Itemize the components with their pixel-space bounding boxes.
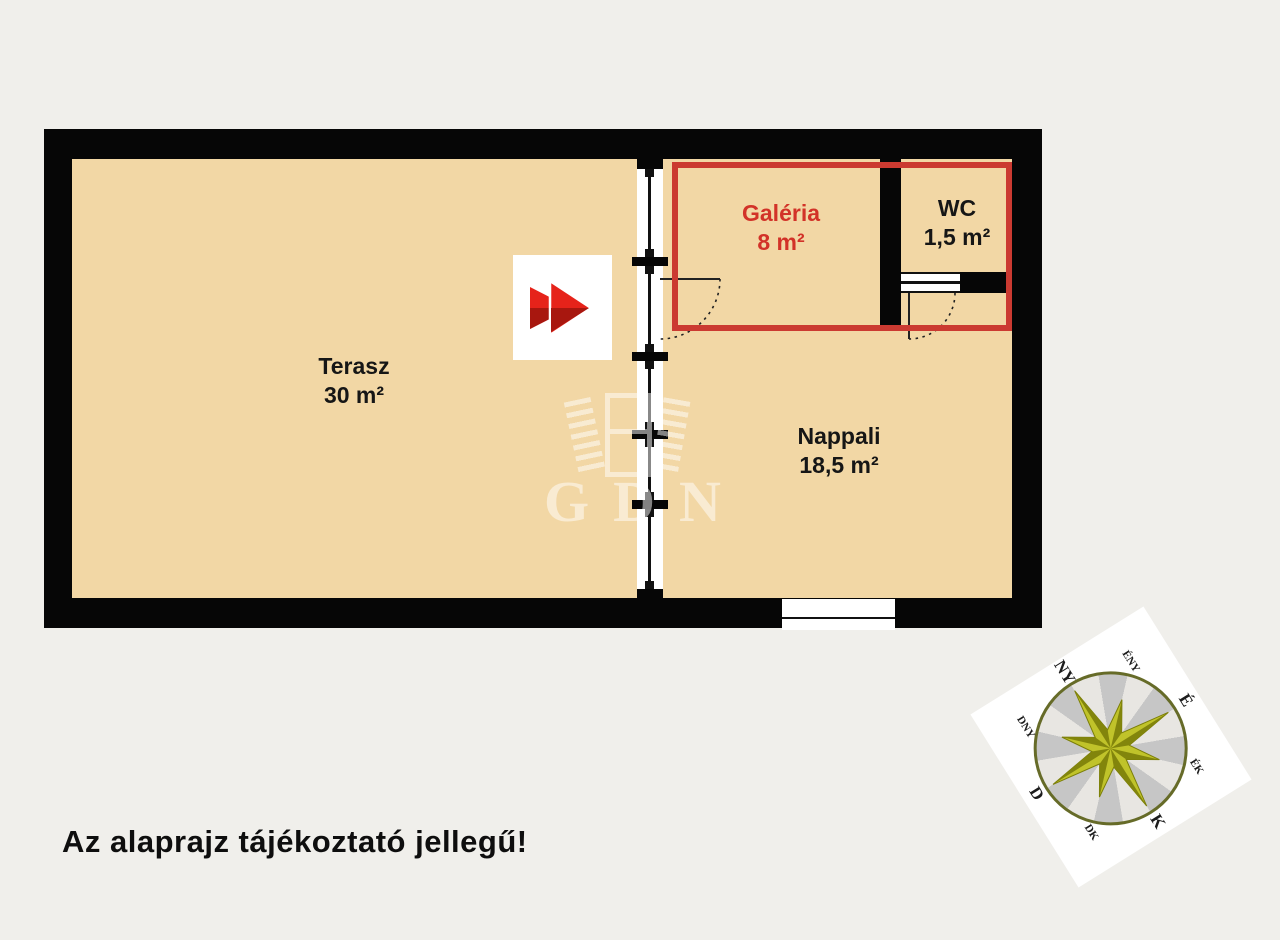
floorplan-page: GDN Terasz 30 m² Galéria 8 m² WC 1,5 m² … [0, 0, 1280, 940]
nappali-window-line [782, 617, 895, 619]
compass-rose: É ÉK K DK D DNY NY ÉNY [970, 606, 1251, 887]
room-label-galeria: Galéria 8 m² [742, 199, 820, 257]
compass-star-icon [1009, 646, 1213, 850]
red-arrow-icon [513, 255, 612, 360]
window-icon [637, 169, 663, 257]
room-area: 8 m² [742, 228, 820, 257]
nappali-window-icon [782, 599, 895, 630]
compass-circle [1005, 642, 1217, 854]
gdn-logo-center-building-icon [605, 393, 652, 477]
gdn-watermark-text: GDN [544, 468, 745, 535]
room-area: 18,5 m² [797, 451, 880, 480]
disclaimer-text: Az alaprajz tájékoztató jellegű! [62, 824, 528, 860]
entrance-arrow-box [513, 255, 612, 360]
room-name: Terasz [318, 352, 389, 381]
gdn-logo-bar [610, 429, 647, 434]
room-label-nappali: Nappali 18,5 m² [797, 422, 880, 480]
room-label-terasz: Terasz 30 m² [318, 352, 389, 410]
room-name: WC [924, 194, 990, 223]
room-name: Nappali [797, 422, 880, 451]
room-label-wc: WC 1,5 m² [924, 194, 990, 252]
room-name: Galéria [742, 199, 820, 228]
room-area: 1,5 m² [924, 223, 990, 252]
window-glass-line [648, 169, 651, 257]
room-area: 30 m² [318, 381, 389, 410]
compass-label-n: É [1174, 690, 1197, 710]
